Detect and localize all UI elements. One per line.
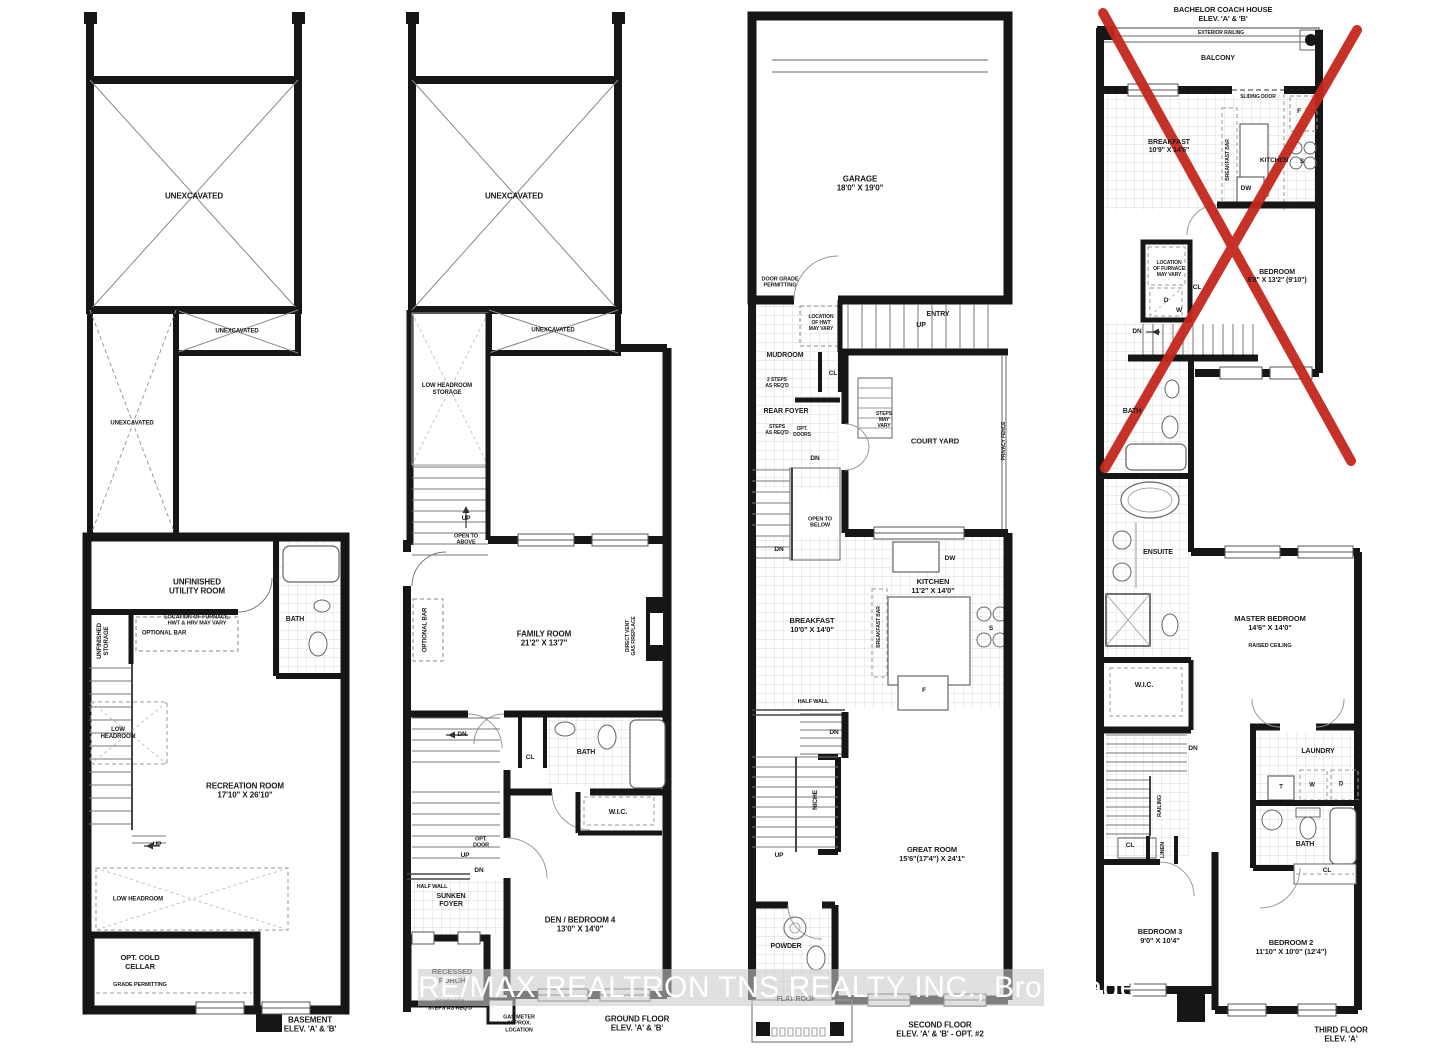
room-label: UNFINISHED STORAGE [97, 623, 111, 659]
room-label: DN [1188, 745, 1197, 753]
watermark: RE/MAX REALTRON TNS REALTY INC., Brokera… [418, 969, 1044, 1006]
room-label: LOCATION OF HWT MAY VARY [809, 315, 834, 333]
floor-title: THIRD FLOOR ELEV. 'A' [1314, 1026, 1368, 1045]
room-label: D [1339, 781, 1343, 788]
room-label: HALF WALL [798, 699, 829, 705]
room-label: W [1176, 307, 1182, 315]
room-label: F [1297, 108, 1301, 116]
room-label: OPT. COLD CELLAR [120, 954, 159, 972]
room-label: CL [1323, 867, 1331, 875]
room-label: BATH [577, 749, 596, 757]
room-label: ENTRY [927, 311, 950, 319]
room-label: UP [153, 841, 162, 849]
room-label: DEN / BEDROOM 4 13'0" X 14'0" [545, 916, 616, 935]
room-label: LOCATION OF FURNACE, HWT & HRV MAY VARY [164, 615, 229, 628]
second-floor-plan-walls [752, 16, 1008, 1042]
floor-title: GROUND FLOOR ELEV. 'A' & 'B' [605, 1015, 670, 1034]
room-label: S [989, 625, 993, 633]
plan-heading: BACHELOR COACH HOUSE ELEV. 'A' & 'B' [1174, 6, 1273, 24]
room-label: F [922, 687, 926, 695]
ground-floor-plan-walls [403, 12, 667, 1023]
room-label: KITCHEN 11'2" X 14'0" [911, 578, 954, 596]
room-label: UP [775, 852, 784, 860]
room-label: STEPS AS REQ'D [765, 425, 788, 437]
room-label: DOOR GRADE PERMITTING [762, 277, 799, 290]
floorplan-sheet: UNEXCAVATEDUNEXCAVATEDUNEXCAVATEDUNFINIS… [0, 0, 1449, 1050]
room-label: OPT. DOOR [473, 837, 489, 850]
room-label: OPEN TO BELOW [808, 517, 832, 530]
room-label: STEPS MAY VARY [876, 412, 892, 430]
room-label: FAMILY ROOM 21'2" X 13'7" [517, 630, 571, 649]
room-label: CL [526, 754, 534, 762]
room-label: SUNKEN FOYER [437, 893, 466, 910]
room-label: BATH [1123, 408, 1142, 416]
room-label: CL [1193, 284, 1201, 292]
room-label: NICHE [812, 790, 820, 810]
room-label: PRIVACY FENCE [1002, 422, 1008, 461]
room-label: GRADE PERMITTING [113, 982, 167, 988]
room-label: BEDROOM 8'8" X 13'2" (9'10") [1247, 269, 1306, 286]
room-label: UNEXCAVATED [215, 328, 258, 335]
room-label: REAR FOYER [764, 408, 809, 416]
room-label: KITCHEN [1260, 157, 1288, 165]
room-label: OPTIONAL BAR [422, 608, 429, 652]
room-label: D [1164, 297, 1169, 305]
room-label: LINEN [1160, 842, 1166, 858]
room-label: DN [1132, 328, 1141, 336]
room-label: W.I.C. [609, 809, 627, 817]
room-label: DN [474, 867, 483, 875]
room-label: UNEXCAVATED [531, 327, 574, 334]
room-label: MASTER BEDROOM 14'6" X 14'0" [1234, 615, 1306, 633]
room-label: BEDROOM 3 9'0" X 10'4" [1138, 928, 1183, 946]
room-label: UP [462, 515, 471, 523]
room-label: GARAGE 18'0" X 19'0" [837, 175, 884, 194]
room-label: DW [1241, 185, 1252, 193]
room-label: BEDROOM 2 11'10" X 10'0" (12'4") [1255, 939, 1326, 957]
room-label: LOW HEADROOM [113, 896, 163, 903]
room-label: UNFINISHED UTILITY ROOM [169, 578, 225, 597]
room-label: W [1309, 782, 1315, 789]
room-label: RECREATION ROOM 17'10" X 26'10" [206, 782, 284, 801]
room-label: ENSUITE [1143, 549, 1173, 557]
room-label: RAISED CEILING [1248, 643, 1291, 649]
room-label: LAUNDRY [1301, 748, 1334, 756]
room-label: HALF WALL [417, 884, 448, 890]
room-label: T [1279, 784, 1283, 791]
room-label: BALCONY [1201, 55, 1235, 63]
room-label: OPTIONAL BAR [142, 630, 186, 637]
room-label: DN [810, 455, 819, 463]
room-label: BREAKFAST BAR [1226, 139, 1232, 180]
room-label: DN [457, 731, 466, 739]
room-label: DW [945, 555, 956, 563]
room-label: CL [829, 370, 837, 378]
basement-plan-walls [84, 12, 345, 1032]
room-label: UP [916, 322, 926, 330]
room-label: OPT. DOORS [793, 427, 811, 439]
room-label: UNEXCAVATED [485, 191, 543, 200]
room-label: DIRECT VENT GAS FIREPLACE [626, 616, 638, 655]
floor-title: SECOND FLOOR ELEV. 'A' & 'B' - OPT. #2 [896, 1021, 984, 1040]
room-label: LOCATION OF FURNACE MAY VARY [1153, 261, 1185, 279]
room-label: DN [774, 546, 783, 554]
room-label: W.I.C. [1135, 682, 1153, 690]
room-label: SLIDING DOOR [1240, 95, 1275, 101]
room-label: LOW HEADROOM STORAGE [422, 383, 472, 397]
room-label: BREAKFAST BAR [877, 606, 883, 647]
room-label: COURT YARD [911, 438, 959, 447]
room-label: GREAT ROOM 15'6"(17'4") X 24'1" [899, 846, 965, 864]
room-label: BATH [1296, 841, 1315, 849]
floor-title: BASEMENT ELEV. 'A' & 'B' [284, 1016, 337, 1035]
room-label: BREAKFAST 10'9" X 14'6" [1148, 139, 1190, 156]
room-label: LOW HEADROOM [101, 727, 136, 741]
room-label: S [1300, 158, 1304, 166]
room-label: UP [461, 852, 470, 860]
room-label: OPEN TO ABOVE [454, 534, 478, 547]
room-label: RAILING [1157, 795, 1163, 817]
room-label: EXTERIOR RAILING [1198, 31, 1244, 37]
room-label: GAS METER APPROX. LOCATION [503, 1014, 535, 1033]
room-label: DN [829, 729, 838, 737]
room-label: BREAKFAST 10'0" X 14'0" [790, 617, 835, 635]
room-label: MUDROOM [766, 352, 803, 360]
room-label: UNEXCAVATED [110, 420, 153, 427]
room-label: UNEXCAVATED [165, 191, 223, 200]
room-label: BATH [286, 616, 305, 624]
room-label: POWDER [771, 943, 802, 951]
room-label: 2 STEPS AS REQ'D [765, 378, 788, 390]
room-label: CL [1126, 842, 1134, 850]
